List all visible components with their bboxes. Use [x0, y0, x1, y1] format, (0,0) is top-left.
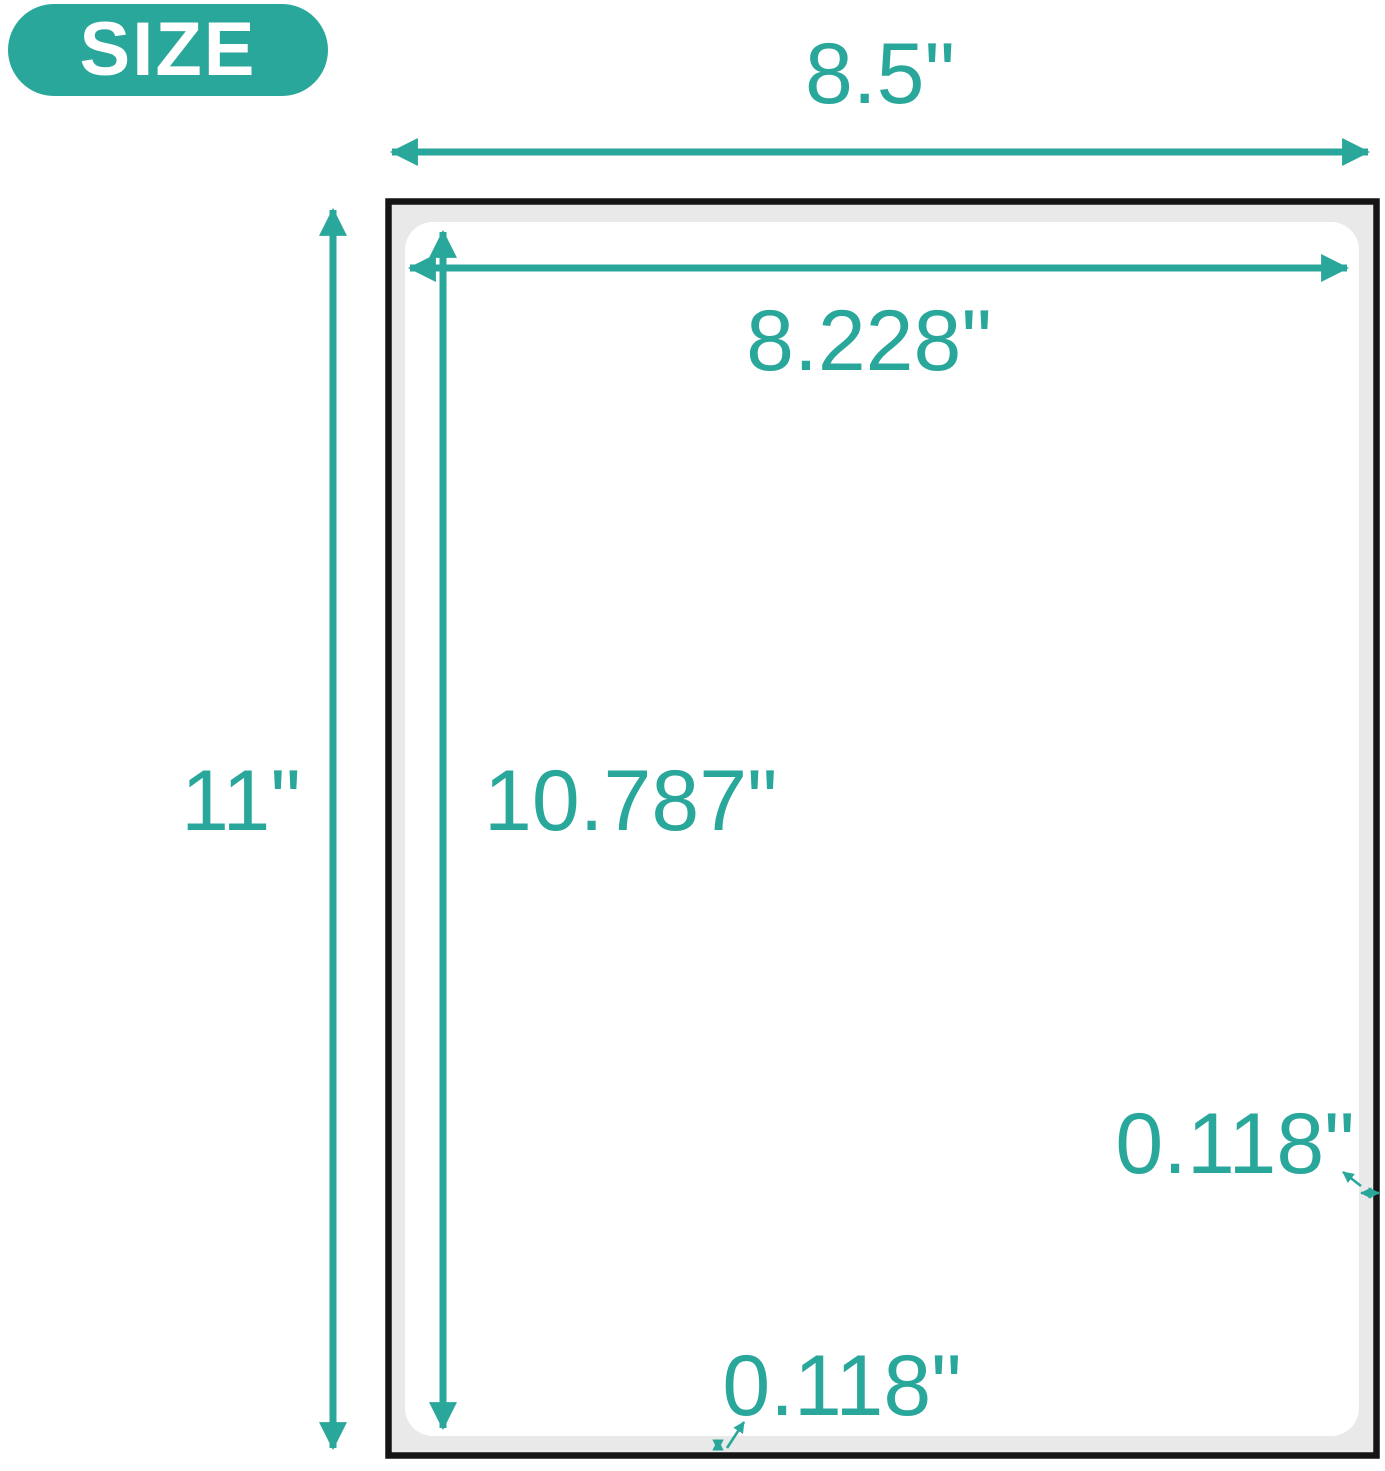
dimension-drawing [0, 0, 1385, 1471]
right-margin-dimension-label: 0.118" [1115, 1101, 1354, 1187]
label-height-dimension-label: 10.787" [484, 758, 778, 844]
bottom-margin-dimension-label: 0.118" [722, 1343, 961, 1429]
sheet-height-dimension-label: 11" [181, 758, 301, 844]
size-diagram: SIZE 8.5" 8.228" 11" 10.7 [0, 0, 1385, 1471]
label-width-dimension-label: 8.228" [746, 298, 992, 384]
sheet-width-dimension-label: 8.5" [805, 31, 955, 117]
